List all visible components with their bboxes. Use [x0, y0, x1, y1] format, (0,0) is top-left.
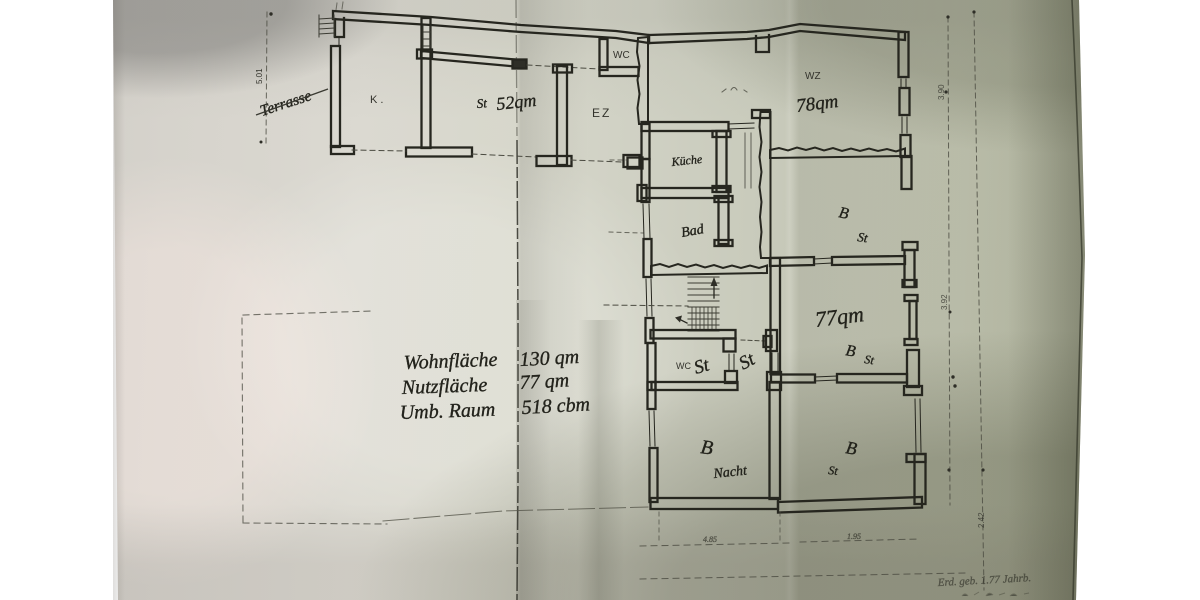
svg-text:K .: K .: [370, 94, 383, 106]
svg-text:2.42: 2.42: [977, 512, 986, 528]
svg-text:EZ: EZ: [592, 106, 611, 120]
svg-text:St: St: [828, 463, 839, 478]
svg-text:St: St: [864, 352, 876, 367]
svg-text:WC: WC: [613, 50, 630, 61]
svg-text:B: B: [699, 436, 714, 459]
svg-text:St: St: [692, 354, 713, 378]
svg-text:52qm: 52qm: [495, 90, 537, 114]
svg-text:B: B: [844, 437, 858, 459]
svg-text:4.85: 4.85: [703, 535, 717, 544]
svg-text:77qm: 77qm: [814, 301, 866, 332]
svg-text:WC: WC: [676, 361, 691, 371]
svg-text:518 cbm: 518 cbm: [521, 393, 590, 419]
svg-text:St: St: [857, 229, 869, 245]
svg-text:5.01: 5.01: [255, 68, 264, 84]
svg-text:B: B: [844, 342, 857, 360]
svg-text:3.92: 3.92: [940, 294, 949, 310]
svg-text:WZ: WZ: [805, 71, 821, 82]
svg-text:Wohnfläche: Wohnfläche: [403, 349, 498, 374]
svg-text:1.95: 1.95: [847, 532, 861, 541]
svg-text:78qm: 78qm: [795, 91, 839, 117]
svg-text:B: B: [837, 204, 850, 223]
svg-text:Erd. geb. 1.77 Jahrb.: Erd. geb. 1.77 Jahrb.: [937, 572, 1032, 589]
svg-text:Umb. Raum: Umb. Raum: [399, 399, 495, 424]
svg-text:St: St: [476, 95, 488, 111]
svg-text:130 qm: 130 qm: [519, 346, 580, 371]
svg-text:3.90: 3.90: [937, 84, 946, 100]
svg-text:Nutzfläche: Nutzfläche: [400, 374, 487, 399]
svg-text:Küche: Küche: [670, 152, 704, 169]
svg-text:Nacht: Nacht: [712, 463, 749, 482]
svg-text:77 qm: 77 qm: [519, 369, 570, 394]
svg-text:Bad: Bad: [680, 222, 706, 241]
svg-text:St: St: [735, 349, 759, 375]
